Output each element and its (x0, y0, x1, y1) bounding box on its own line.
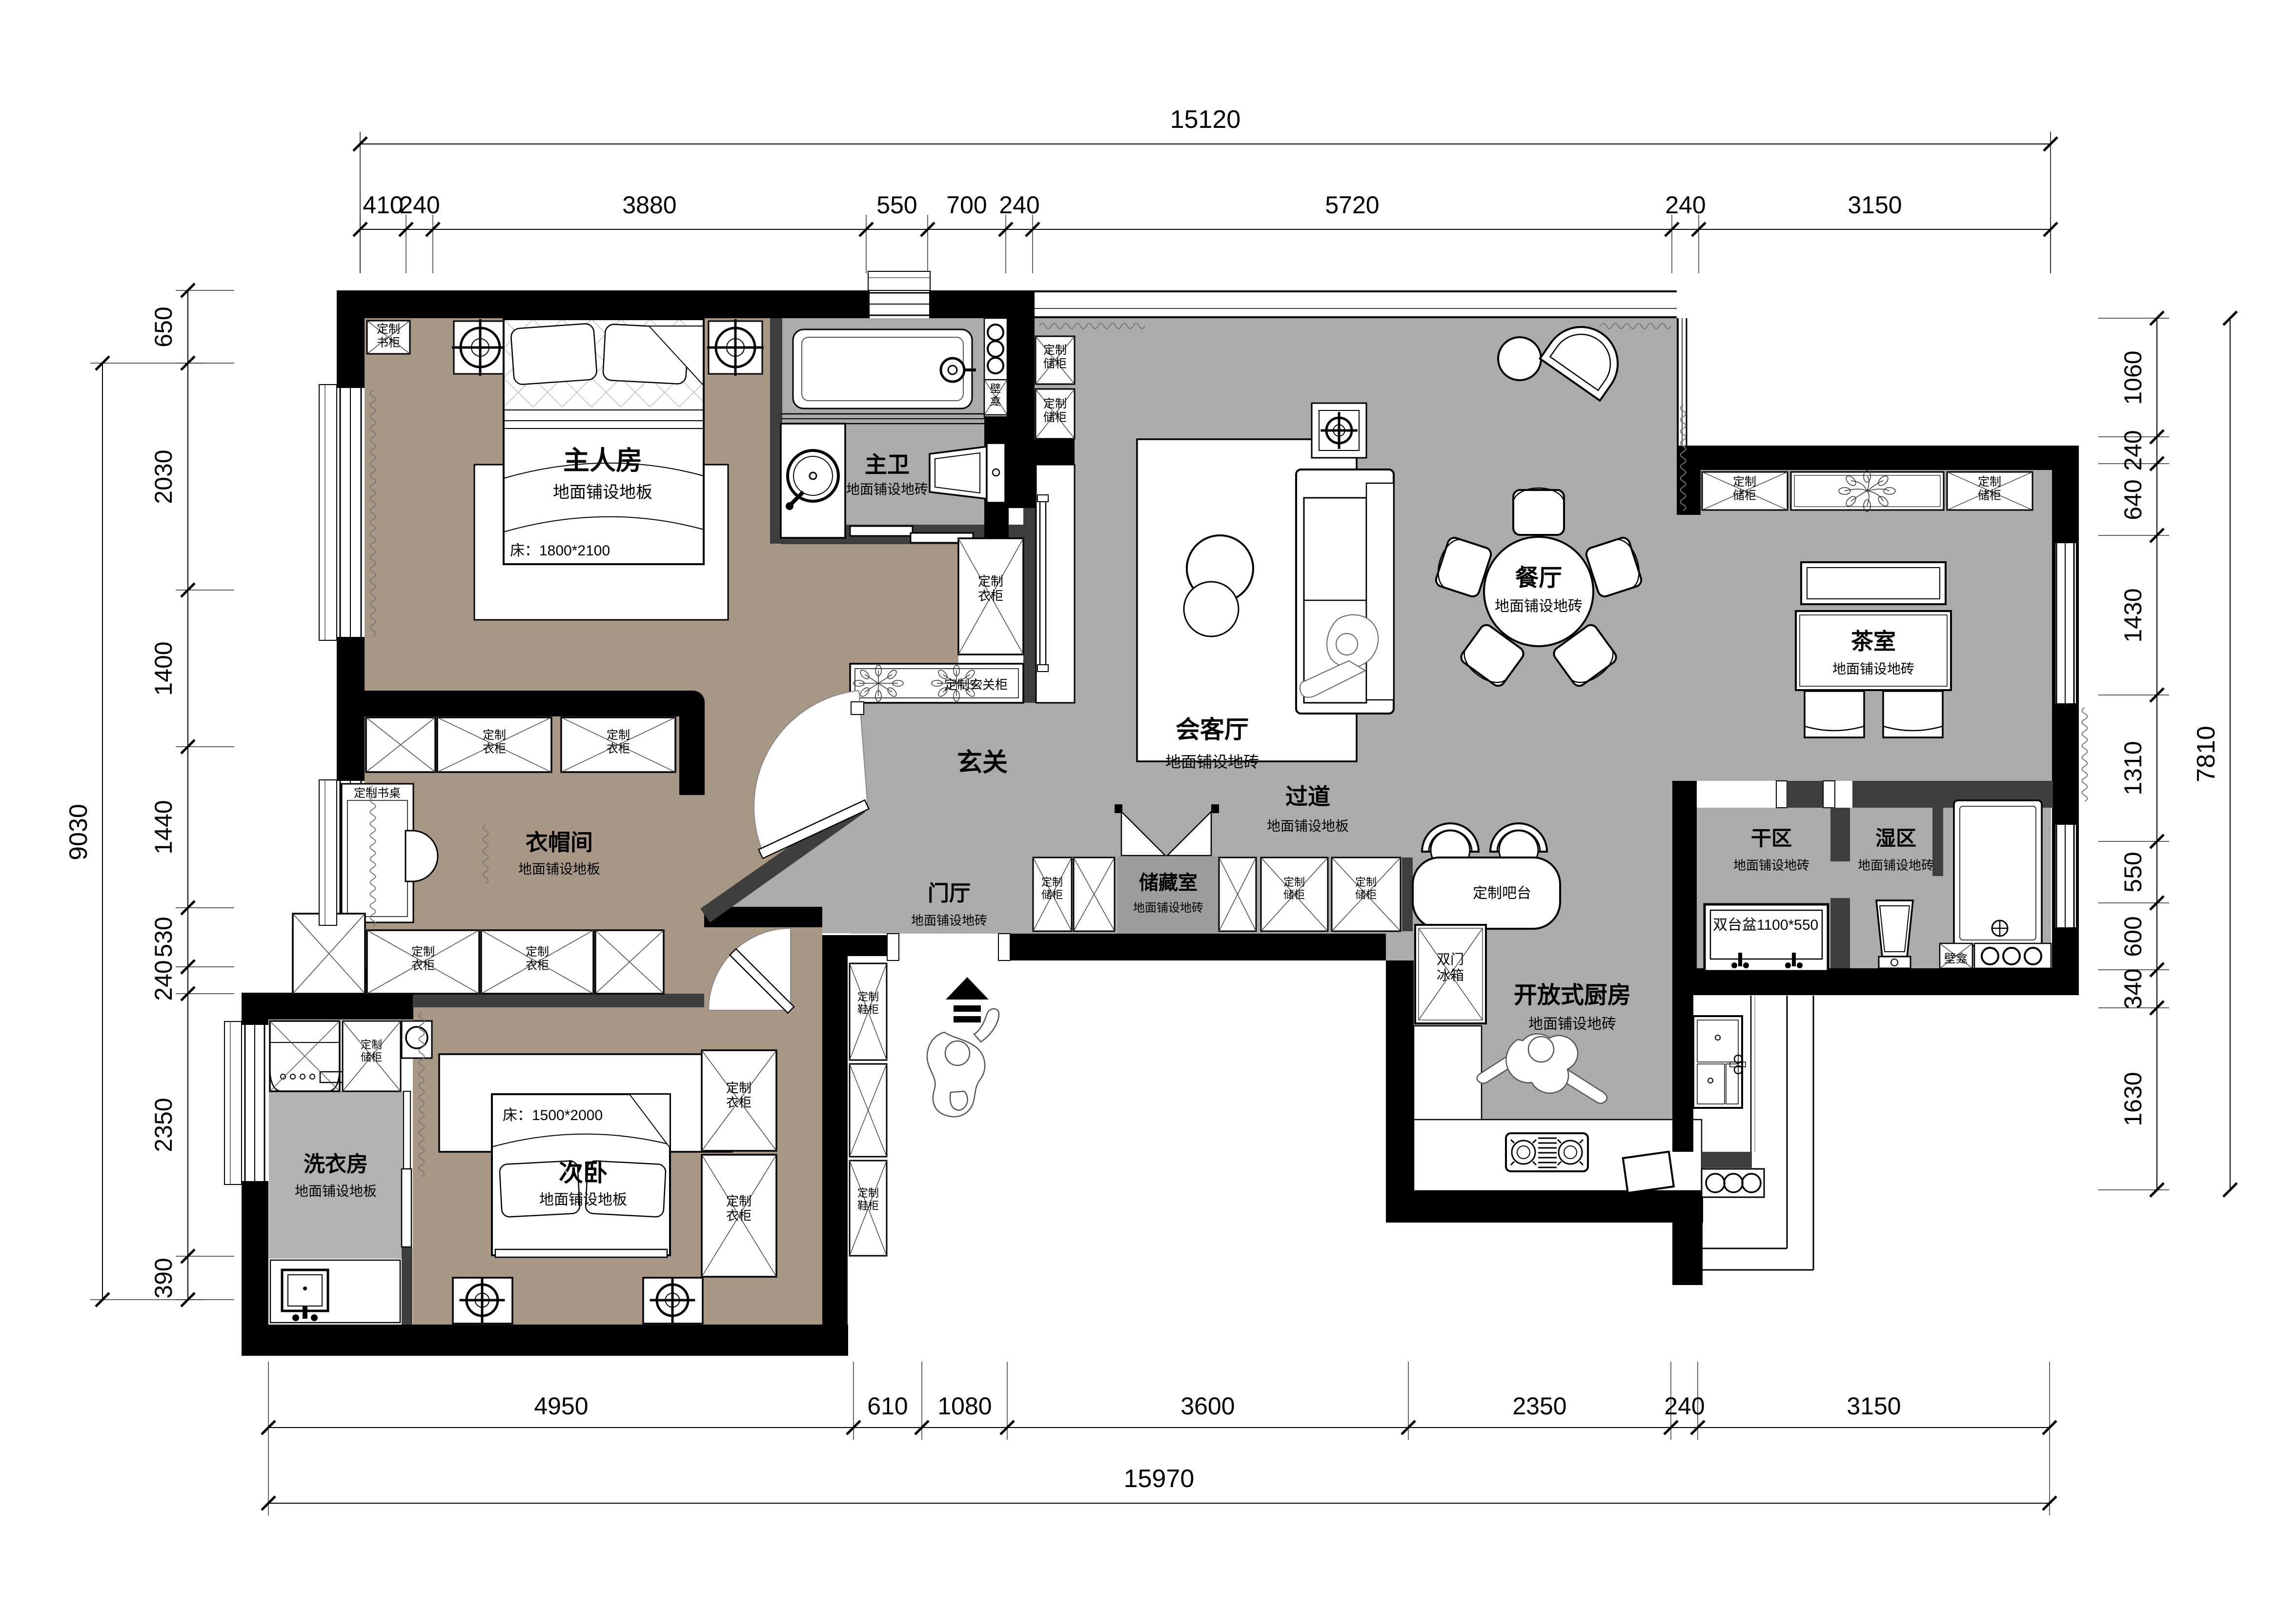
svg-text:610: 610 (867, 1392, 908, 1420)
svg-text:湿区: 湿区 (1875, 827, 1916, 850)
svg-text:衣柜: 衣柜 (483, 742, 506, 755)
svg-text:3600: 3600 (1180, 1392, 1235, 1420)
svg-text:储柜: 储柜 (1355, 889, 1377, 901)
svg-text:定制: 定制 (1283, 876, 1305, 888)
svg-text:530: 530 (150, 917, 177, 957)
svg-text:衣柜: 衣柜 (411, 959, 435, 972)
svg-text:定制: 定制 (1733, 475, 1756, 489)
svg-text:640: 640 (2119, 479, 2147, 520)
svg-text:定制: 定制 (526, 945, 549, 959)
svg-text:储柜: 储柜 (1733, 489, 1756, 502)
svg-text:1060: 1060 (2119, 350, 2147, 405)
svg-text:240: 240 (999, 191, 1039, 219)
svg-text:床：1800*2100: 床：1800*2100 (510, 543, 610, 559)
svg-text:600: 600 (2119, 916, 2147, 957)
svg-text:地面铺设地板: 地面铺设地板 (1267, 818, 1349, 834)
svg-text:3880: 3880 (622, 191, 676, 219)
svg-text:410: 410 (363, 191, 403, 219)
svg-text:15970: 15970 (1124, 1465, 1195, 1493)
svg-text:储柜: 储柜 (1041, 889, 1063, 901)
svg-text:书柜: 书柜 (377, 336, 400, 349)
svg-text:240: 240 (1665, 191, 1706, 219)
svg-text:茶室: 茶室 (1851, 629, 1896, 654)
svg-text:定制: 定制 (857, 991, 879, 1003)
svg-text:衣柜: 衣柜 (607, 742, 630, 755)
svg-text:床：1500*2000: 床：1500*2000 (503, 1107, 603, 1123)
svg-text:次卧: 次卧 (559, 1159, 608, 1186)
svg-text:洗衣房: 洗衣房 (304, 1152, 368, 1176)
svg-text:定制: 定制 (483, 729, 506, 742)
svg-text:储柜: 储柜 (1043, 411, 1067, 424)
svg-text:定制玄关柜: 定制玄关柜 (944, 677, 1008, 692)
svg-text:地面铺设地砖: 地面铺设地砖 (1495, 598, 1583, 614)
svg-text:衣柜: 衣柜 (726, 1095, 752, 1110)
svg-text:1080: 1080 (937, 1392, 992, 1420)
svg-text:储藏室: 储藏室 (1139, 872, 1198, 894)
svg-text:定制: 定制 (1043, 344, 1067, 357)
svg-text:储柜: 储柜 (1978, 489, 2001, 502)
svg-text:会客厅: 会客厅 (1176, 716, 1249, 743)
svg-text:1400: 1400 (150, 641, 177, 695)
svg-text:240: 240 (150, 960, 177, 1000)
svg-text:550: 550 (2119, 852, 2147, 892)
svg-text:龛: 龛 (990, 395, 1001, 408)
svg-text:衣柜: 衣柜 (726, 1208, 752, 1223)
svg-text:壁龛: 壁龛 (1944, 952, 1968, 965)
svg-text:衣帽间: 衣帽间 (526, 830, 593, 855)
svg-text:550: 550 (876, 191, 917, 219)
svg-text:地面铺设地板: 地面铺设地板 (553, 483, 652, 502)
svg-text:650: 650 (150, 306, 177, 347)
svg-text:衣柜: 衣柜 (978, 589, 1003, 603)
svg-text:过道: 过道 (1285, 784, 1330, 809)
svg-text:定制: 定制 (1355, 876, 1377, 888)
svg-text:定制书桌: 定制书桌 (354, 787, 401, 800)
svg-text:地面铺设地板: 地面铺设地板 (295, 1184, 377, 1199)
svg-text:壁: 壁 (990, 383, 1001, 395)
svg-text:定制: 定制 (411, 945, 435, 959)
svg-text:衣柜: 衣柜 (526, 959, 549, 972)
svg-text:鞋柜: 鞋柜 (857, 1003, 879, 1016)
svg-text:门厅: 门厅 (928, 881, 971, 905)
svg-text:7810: 7810 (2192, 726, 2220, 782)
svg-text:地面铺设地砖: 地面铺设地砖 (1165, 753, 1259, 771)
svg-text:定制: 定制 (1978, 475, 2001, 489)
svg-text:定制: 定制 (1043, 397, 1067, 410)
svg-text:定制: 定制 (978, 574, 1003, 589)
svg-text:1430: 1430 (2119, 588, 2147, 642)
svg-text:2350: 2350 (150, 1098, 177, 1152)
svg-text:地面铺设地砖: 地面铺设地砖 (1528, 1016, 1616, 1032)
svg-text:储柜: 储柜 (1043, 357, 1067, 370)
svg-text:1440: 1440 (150, 800, 177, 854)
svg-text:1310: 1310 (2119, 741, 2147, 795)
svg-text:定制: 定制 (726, 1081, 752, 1095)
svg-text:定制: 定制 (361, 1039, 382, 1051)
svg-text:冰箱: 冰箱 (1437, 968, 1464, 983)
svg-text:干区: 干区 (1751, 827, 1792, 850)
svg-text:储柜: 储柜 (1283, 889, 1305, 901)
svg-text:玄关: 玄关 (957, 749, 1008, 777)
svg-text:2030: 2030 (150, 449, 177, 504)
svg-text:3150: 3150 (1847, 1392, 1901, 1420)
svg-text:主卫: 主卫 (865, 452, 910, 477)
svg-text:定制: 定制 (607, 729, 630, 742)
svg-text:地面铺设地砖: 地面铺设地砖 (846, 482, 928, 497)
svg-text:主人房: 主人房 (563, 446, 642, 475)
svg-text:定制: 定制 (377, 323, 400, 336)
svg-text:地面铺设地板: 地面铺设地板 (539, 1192, 627, 1208)
svg-text:地面铺设地砖: 地面铺设地砖 (1832, 661, 1914, 676)
svg-text:15120: 15120 (1170, 105, 1241, 134)
svg-text:定制: 定制 (1041, 876, 1063, 888)
svg-text:4950: 4950 (534, 1392, 588, 1420)
svg-text:1630: 1630 (2119, 1072, 2147, 1126)
svg-text:地面铺设地砖: 地面铺设地砖 (911, 913, 987, 928)
svg-text:定制: 定制 (726, 1194, 752, 1208)
svg-text:鞋柜: 鞋柜 (857, 1200, 879, 1212)
svg-text:390: 390 (150, 1258, 177, 1298)
svg-text:储柜: 储柜 (361, 1051, 382, 1063)
svg-text:3150: 3150 (1848, 191, 1902, 219)
svg-text:双门: 双门 (1437, 952, 1464, 967)
svg-text:240: 240 (399, 191, 440, 219)
svg-text:地面铺设地砖: 地面铺设地砖 (1858, 858, 1934, 873)
svg-text:开放式厨房: 开放式厨房 (1514, 982, 1631, 1008)
svg-text:700: 700 (946, 191, 987, 219)
svg-text:2350: 2350 (1512, 1392, 1566, 1420)
svg-text:地面铺设地砖: 地面铺设地砖 (1733, 858, 1809, 873)
svg-text:5720: 5720 (1325, 191, 1379, 219)
svg-text:240: 240 (1664, 1392, 1705, 1420)
svg-text:地面铺设地板: 地面铺设地板 (518, 861, 600, 877)
svg-text:定制: 定制 (857, 1187, 879, 1199)
svg-text:地面铺设地砖: 地面铺设地砖 (1133, 901, 1203, 915)
svg-text:9030: 9030 (64, 804, 93, 860)
svg-text:240: 240 (2119, 430, 2147, 470)
svg-text:定制吧台: 定制吧台 (1473, 885, 1531, 901)
svg-text:340: 340 (2119, 968, 2147, 1009)
svg-text:双台盆1100*550: 双台盆1100*550 (1713, 917, 1818, 933)
svg-text:餐厅: 餐厅 (1515, 565, 1562, 591)
